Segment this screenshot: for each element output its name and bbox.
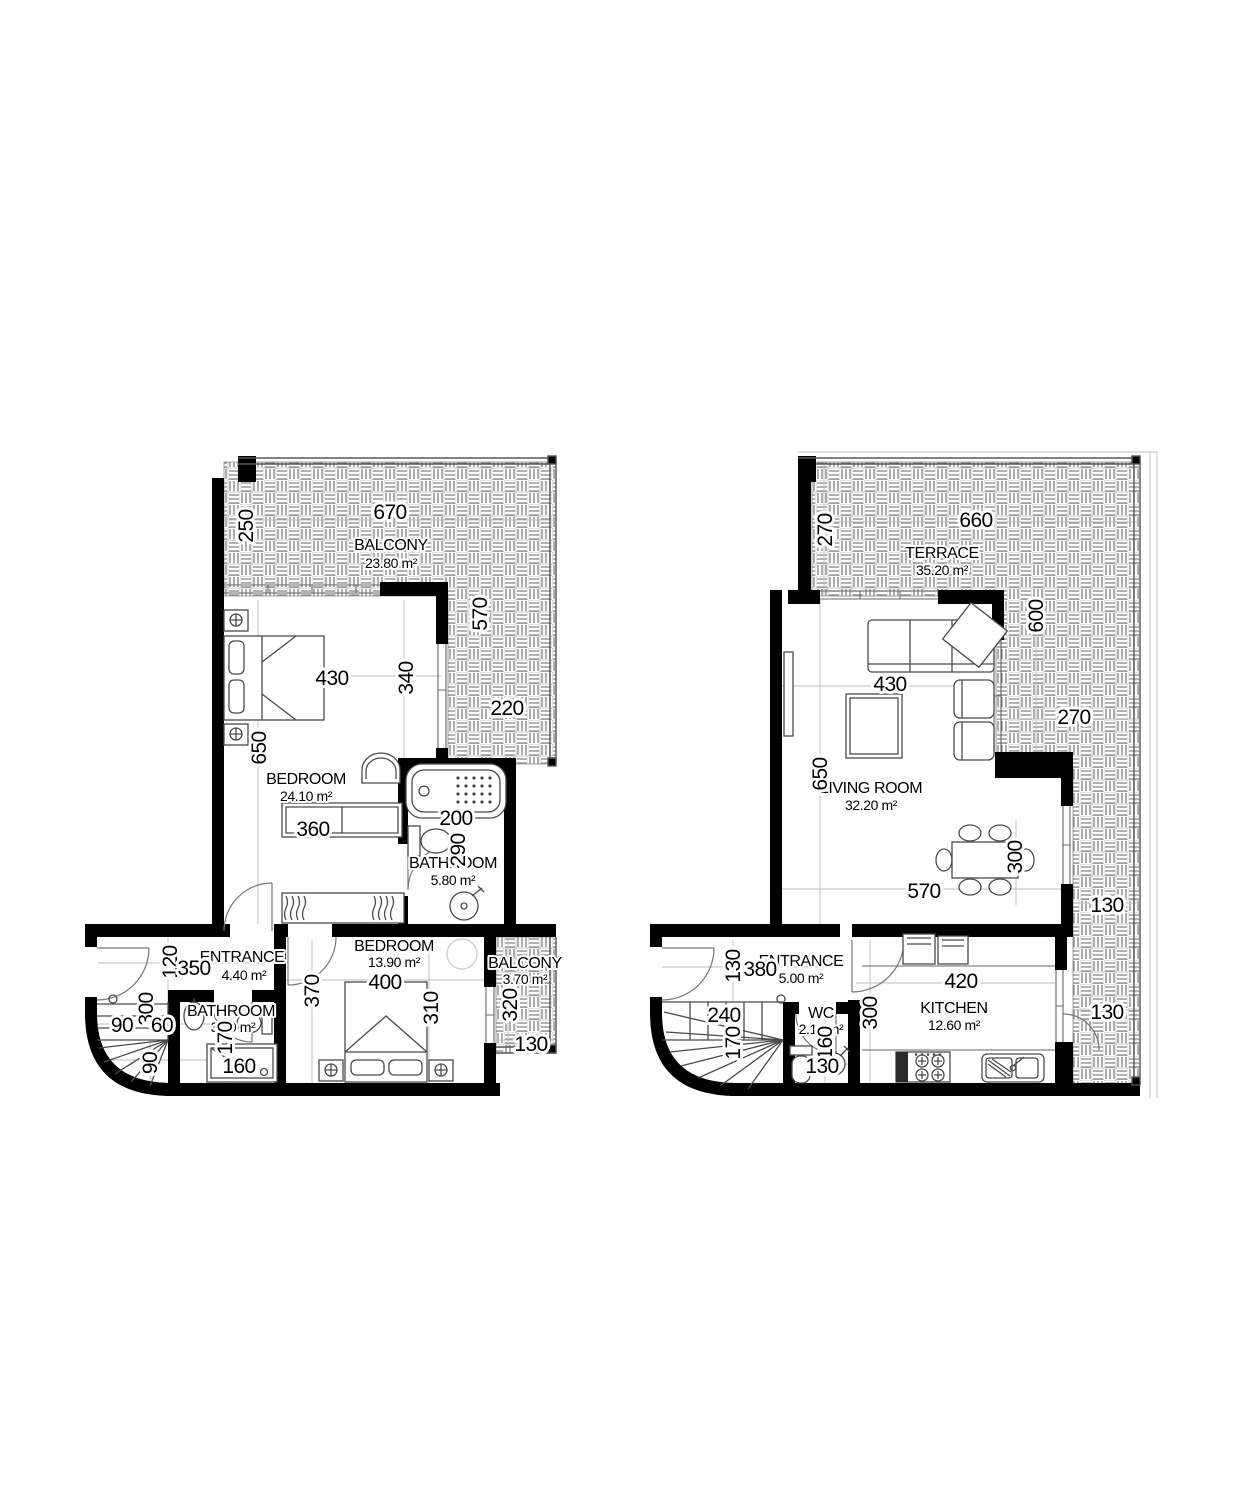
room-area: 35.20 m² [916,562,969,578]
dimension-label: 270 [1057,706,1090,729]
room-name: BALCONY [354,537,428,554]
dimension-label: 200 [439,807,472,830]
dimension-label: 650 [248,731,271,764]
room-area: 12.60 m² [928,1017,981,1033]
floor-plan-right: TERRACE 35.20 m² LIVING ROOM 32.20 m² EN… [650,452,1157,1098]
dimension-label: 670 [373,501,406,524]
dimension-label: 430 [315,667,348,690]
sink [450,886,484,920]
dimension-label: 290 [447,833,470,866]
room-area: 5.80 m² [431,872,476,888]
dimension-label: 430 [873,673,906,696]
floor-plan-sheet: BALCONY 23.80 m² BEDROOM 24.10 m² BATHRO… [0,0,1251,1500]
double-bed [224,636,324,720]
dimension-label: 60 [151,1014,173,1037]
dimension-label: 130 [805,1055,838,1078]
room-area: 24.10 m² [280,788,333,804]
dimension-label: 160 [222,1055,255,1078]
dimension-label: 340 [395,661,418,694]
room-area: 13.90 m² [368,954,421,970]
dimension-label: 130 [722,949,745,982]
room-name: WC [808,1005,834,1022]
dimension-label: 90 [139,1052,162,1074]
room-area: 5.00 m² [779,970,824,986]
room-name: TERRACE [905,545,979,562]
dimension-label: 170 [722,1026,745,1059]
room-area: 4.40 m² [222,967,267,983]
refrigerator [903,934,968,964]
dimension-label: 600 [1025,599,1048,632]
ceiling-lamp [447,939,477,969]
dimension-label: 300 [859,996,882,1029]
room-name: BATHROOM [187,1003,275,1020]
dimension-label: 650 [809,757,832,790]
dimension-label: 420 [944,970,977,993]
dimension-label: 240 [707,1004,740,1027]
dimension-label: 300 [1004,840,1027,873]
dimension-label: 350 [177,957,210,980]
room-name: LIVING ROOM [820,780,922,797]
dimension-label: 400 [368,971,401,994]
double-bed [345,982,427,1082]
kitchen-sink [982,1054,1044,1082]
dimension-label: 310 [420,991,443,1024]
dimension-label: 570 [469,597,492,630]
room-name: KITCHEN [920,1000,987,1017]
room-area: 32.20 m² [845,797,898,813]
dimension-label: 130 [1090,894,1123,917]
dimension-label: 320 [499,988,522,1021]
dimension-label: 370 [301,974,324,1007]
dimension-label: 130 [1090,1001,1123,1024]
tv-unit [784,652,793,736]
room-name: BALCONY [488,955,562,972]
floor-plan-drawing: BALCONY 23.80 m² BEDROOM 24.10 m² BATHRO… [0,0,1251,1500]
dimension-label: 380 [743,958,776,981]
dimension-label: 570 [907,880,940,903]
room-name: BEDROOM [354,938,434,955]
room-name: ENTRANCE [200,949,285,966]
coffee-table [846,694,902,758]
dimension-label: 660 [959,509,992,532]
closet [282,893,404,923]
dimension-label: 360 [296,818,329,841]
dimension-label: 270 [814,513,837,546]
armchair [362,753,400,783]
stove [896,1052,950,1082]
dimension-label: 250 [235,509,258,542]
toilet [408,826,451,856]
room-name: BEDROOM [266,771,346,788]
dimension-label: 130 [514,1033,547,1056]
dimension-label: 90 [111,1014,133,1037]
floor-plan-left: BALCONY 23.80 m² BEDROOM 24.10 m² BATHRO… [85,456,563,1096]
room-area: 23.80 m² [365,555,418,571]
dimension-label: 220 [490,697,523,720]
room-area: 3.70 m² [503,971,548,987]
dimension-label: 170 [214,1021,237,1054]
